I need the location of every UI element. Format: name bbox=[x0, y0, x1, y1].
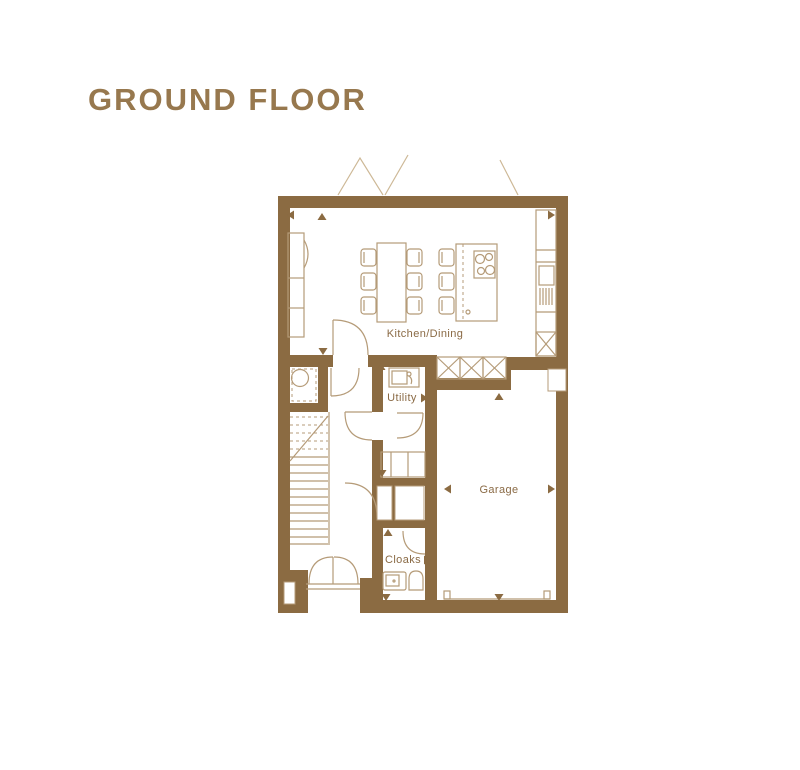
storage-units bbox=[437, 357, 506, 379]
floor-plan-page: GROUND FLOOR bbox=[0, 0, 800, 770]
cloaks-fixtures bbox=[383, 571, 423, 590]
utility-fixtures bbox=[381, 368, 425, 477]
cylinder-cupboard bbox=[292, 369, 317, 401]
page-title: GROUND FLOOR bbox=[88, 82, 367, 118]
dining-table bbox=[361, 243, 422, 322]
roof-lines bbox=[338, 155, 518, 195]
kitchen-tall-cabinet bbox=[288, 233, 308, 337]
walls bbox=[278, 196, 568, 613]
room-label-utility: Utility bbox=[387, 392, 417, 404]
room-label-cloaks: Cloaks bbox=[385, 554, 421, 566]
staircase bbox=[290, 412, 329, 545]
hall-cupboards bbox=[377, 486, 424, 520]
kitchen-counter bbox=[536, 210, 556, 356]
room-label-garage: Garage bbox=[479, 484, 518, 496]
room-label-kitchen-dining: Kitchen/Dining bbox=[387, 328, 464, 340]
kitchen-island bbox=[439, 244, 497, 321]
